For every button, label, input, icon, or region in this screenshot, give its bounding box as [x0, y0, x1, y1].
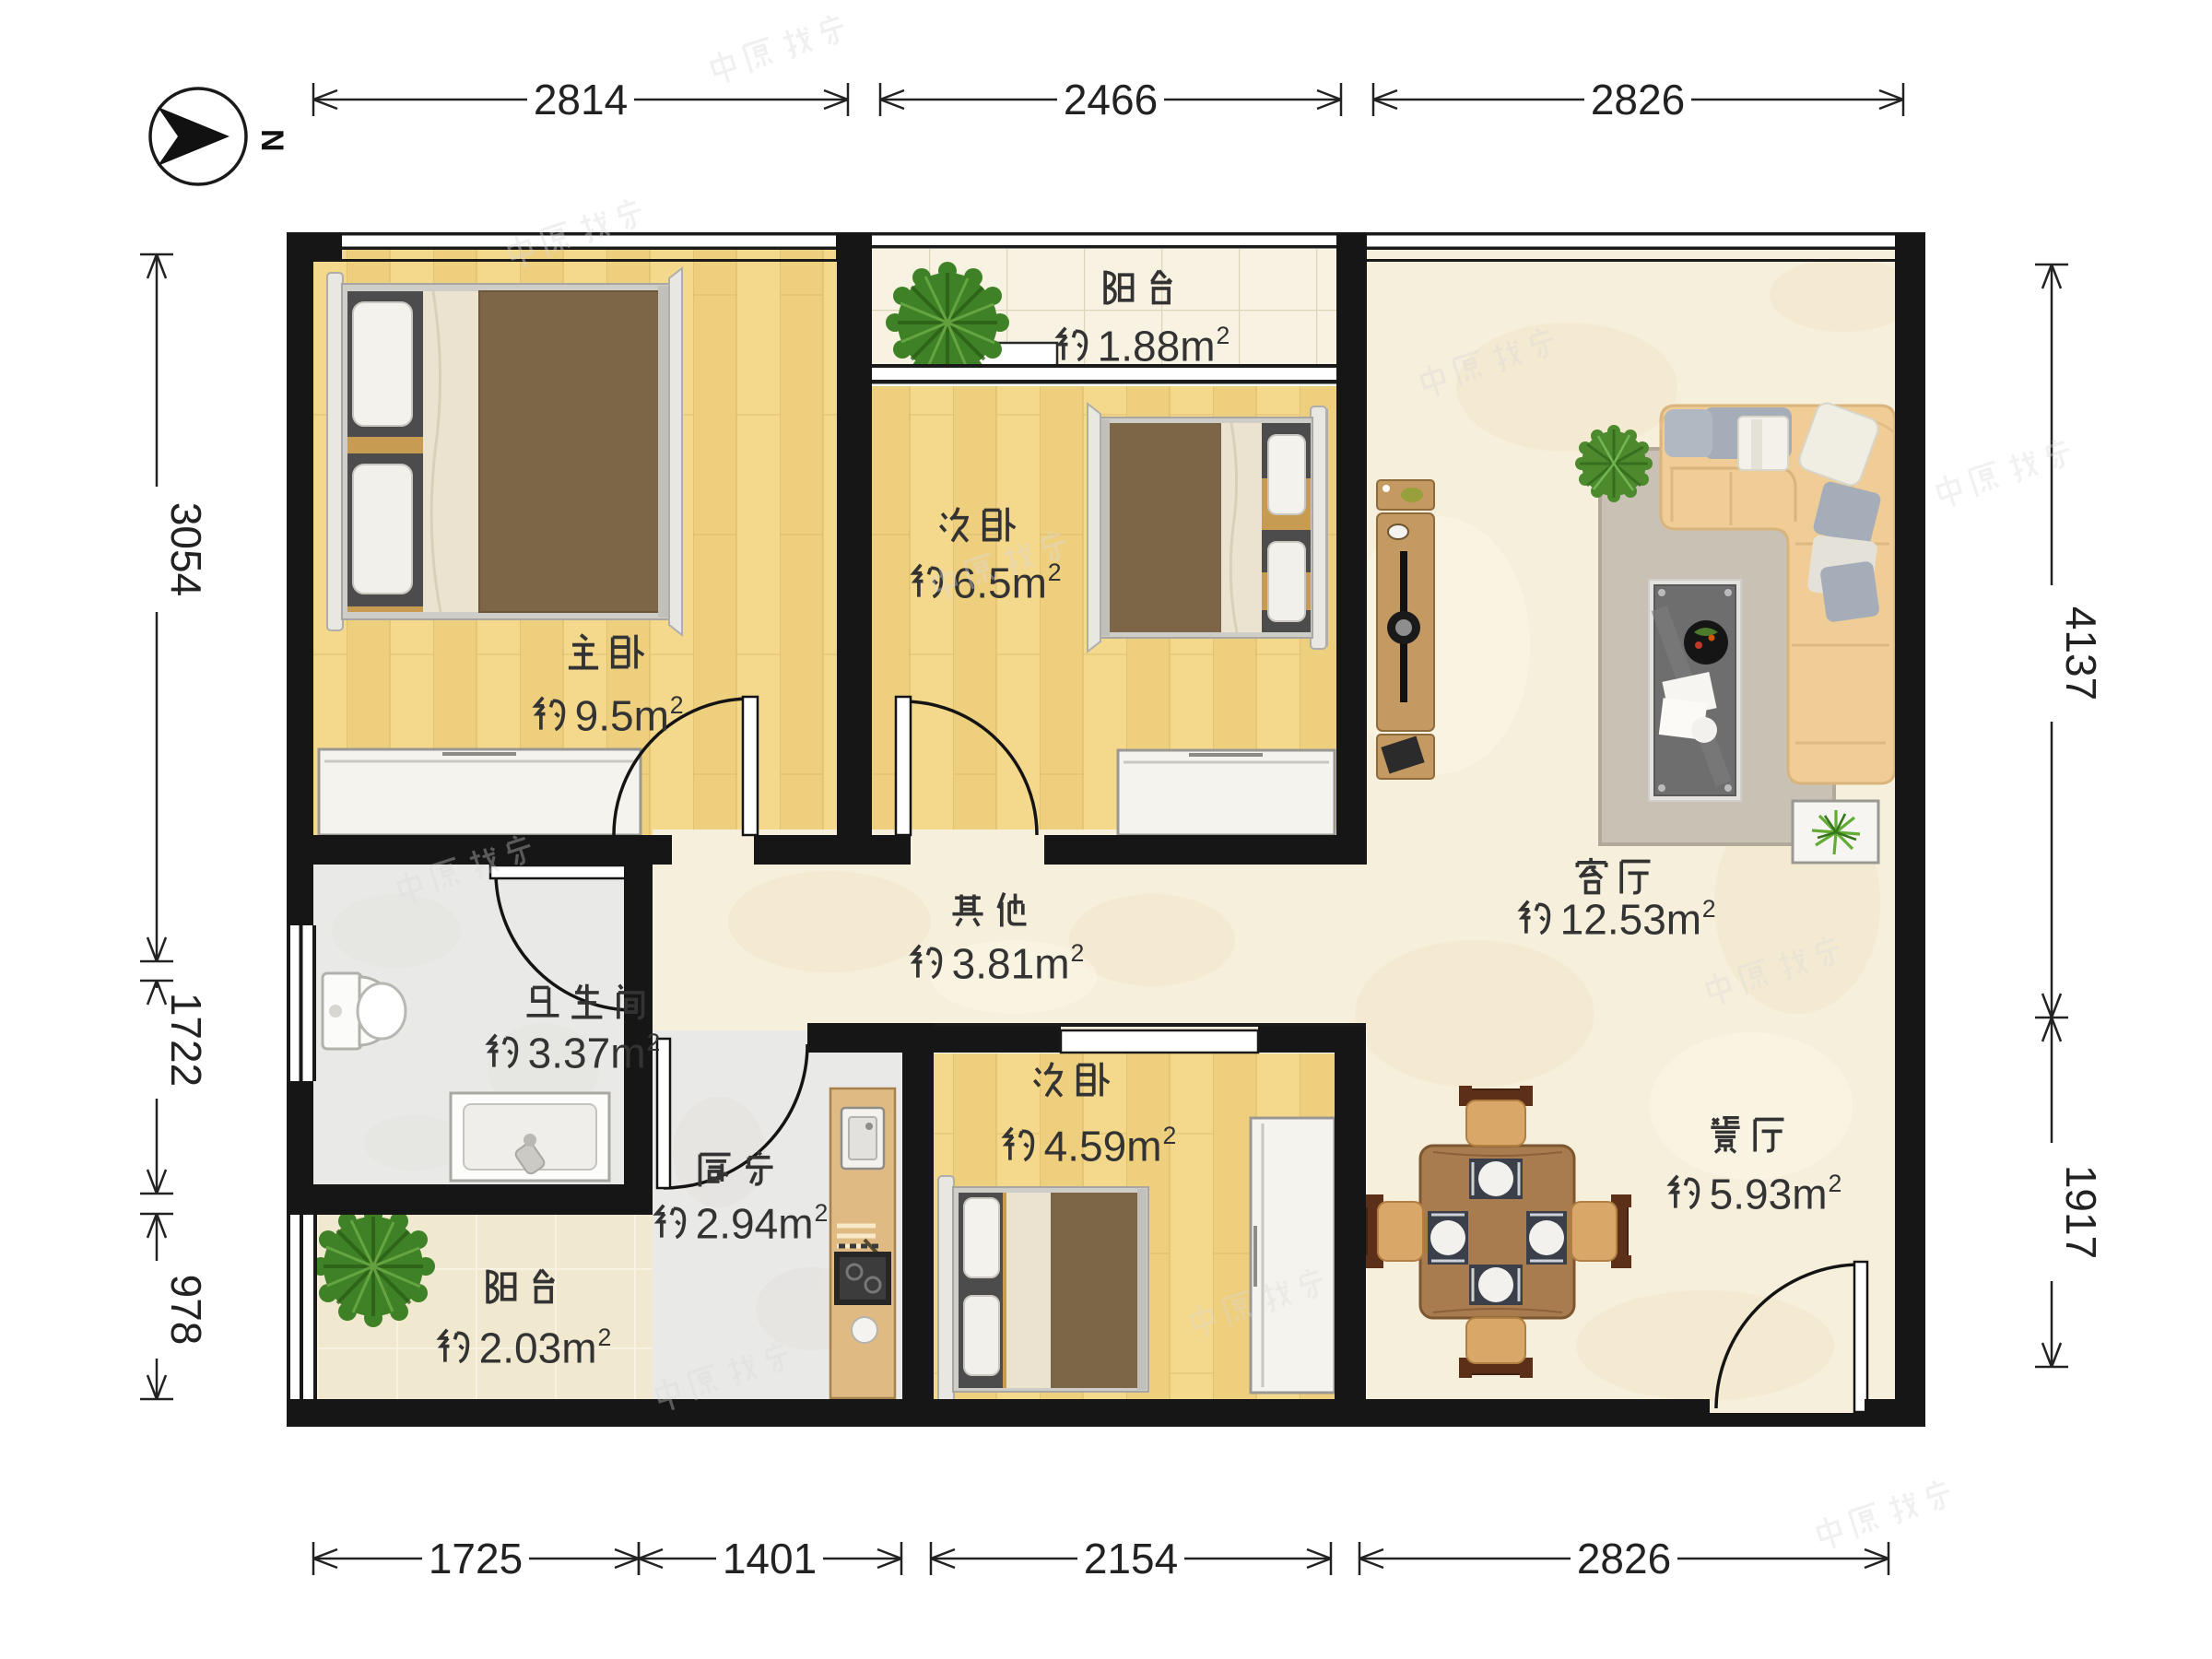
svg-text:2: 2: [670, 691, 684, 719]
svg-text:5.93m: 5.93m: [1710, 1171, 1828, 1218]
svg-text:3054: 3054: [162, 502, 210, 596]
svg-text:2: 2: [1702, 895, 1716, 923]
svg-text:2826: 2826: [1577, 1535, 1671, 1583]
svg-text:2.03m: 2.03m: [479, 1324, 597, 1372]
svg-text:2: 2: [646, 1029, 660, 1056]
svg-text:2: 2: [1828, 1170, 1841, 1197]
svg-text:1722: 1722: [162, 993, 210, 1087]
svg-text:4.59m: 4.59m: [1044, 1123, 1162, 1171]
svg-text:12.53m: 12.53m: [1560, 896, 1701, 944]
svg-text:978: 978: [162, 1275, 210, 1346]
svg-text:1401: 1401: [723, 1535, 817, 1583]
svg-text:2826: 2826: [1591, 76, 1685, 124]
svg-text:N: N: [254, 129, 289, 152]
svg-text:2: 2: [597, 1324, 611, 1351]
svg-text:2: 2: [1216, 322, 1230, 349]
svg-text:2: 2: [1162, 1122, 1176, 1149]
svg-text:3.81m: 3.81m: [952, 940, 1070, 988]
svg-text:2: 2: [814, 1199, 828, 1227]
svg-text:2814: 2814: [534, 76, 628, 124]
svg-text:2154: 2154: [1084, 1535, 1178, 1583]
svg-text:2: 2: [1048, 559, 1062, 586]
svg-text:4137: 4137: [2057, 606, 2105, 700]
svg-text:3.37m: 3.37m: [528, 1030, 646, 1077]
svg-text:1725: 1725: [429, 1535, 523, 1583]
svg-text:2466: 2466: [1064, 76, 1158, 124]
svg-text:1.88m: 1.88m: [1098, 323, 1216, 371]
svg-text:2.94m: 2.94m: [696, 1200, 814, 1248]
svg-text:1917: 1917: [2057, 1165, 2105, 1259]
svg-text:2: 2: [1070, 939, 1084, 967]
svg-text:9.5m: 9.5m: [575, 692, 669, 740]
